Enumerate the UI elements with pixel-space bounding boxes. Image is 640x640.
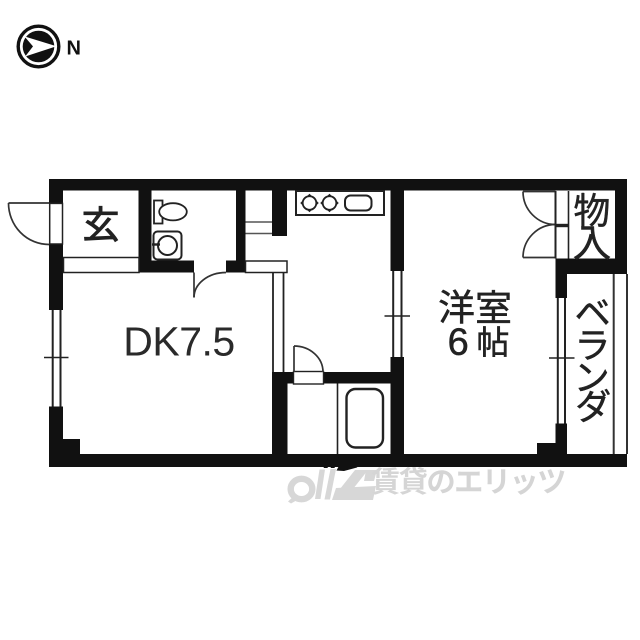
svg-text:N: N — [67, 38, 81, 60]
svg-text:DK7.5: DK7.5 — [123, 319, 234, 365]
